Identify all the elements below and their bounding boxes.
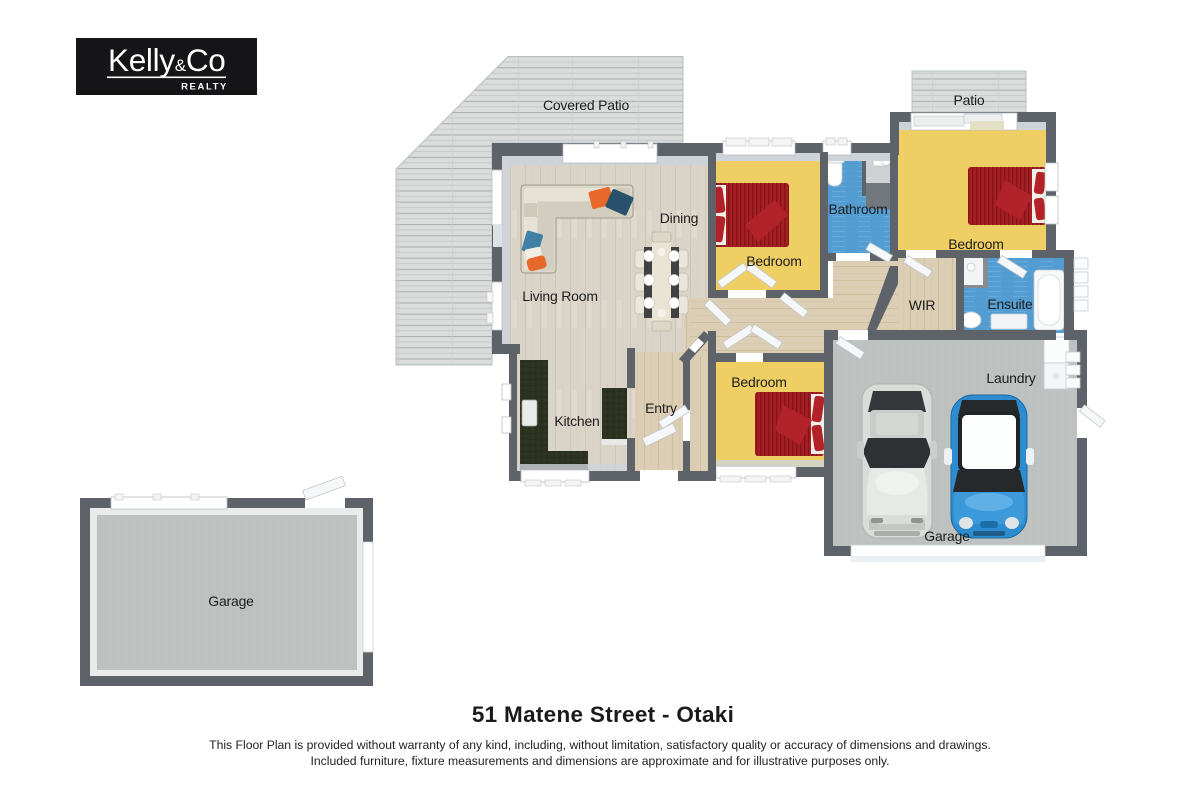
svg-text:Dining: Dining — [660, 210, 699, 226]
svg-text:WIR: WIR — [909, 297, 936, 313]
svg-text:Included furniture, fixture me: Included furniture, fixture measurements… — [311, 754, 890, 768]
svg-text:Covered Patio: Covered Patio — [543, 97, 630, 113]
svg-text:Bathroom: Bathroom — [828, 201, 887, 217]
svg-text:Patio: Patio — [954, 92, 985, 108]
svg-text:Garage: Garage — [924, 528, 970, 544]
svg-text:Bedroom: Bedroom — [948, 236, 1003, 252]
svg-text:Entry: Entry — [645, 400, 677, 416]
svg-text:Garage: Garage — [208, 593, 254, 609]
svg-text:51 Matene Street - Otaki: 51 Matene Street - Otaki — [472, 702, 734, 727]
svg-text:Living Room: Living Room — [522, 288, 598, 304]
svg-text:Bedroom: Bedroom — [731, 374, 786, 390]
svg-text:This Floor Plan is provided wi: This Floor Plan is provided without warr… — [209, 738, 991, 752]
svg-text:REALTY: REALTY — [181, 82, 228, 93]
svg-text:Ensuite: Ensuite — [987, 296, 1033, 312]
svg-text:Bedroom: Bedroom — [746, 253, 801, 269]
svg-text:Laundry: Laundry — [986, 370, 1035, 386]
svg-text:Kelly&Co: Kelly&Co — [108, 42, 226, 78]
svg-text:Kitchen: Kitchen — [554, 413, 599, 429]
